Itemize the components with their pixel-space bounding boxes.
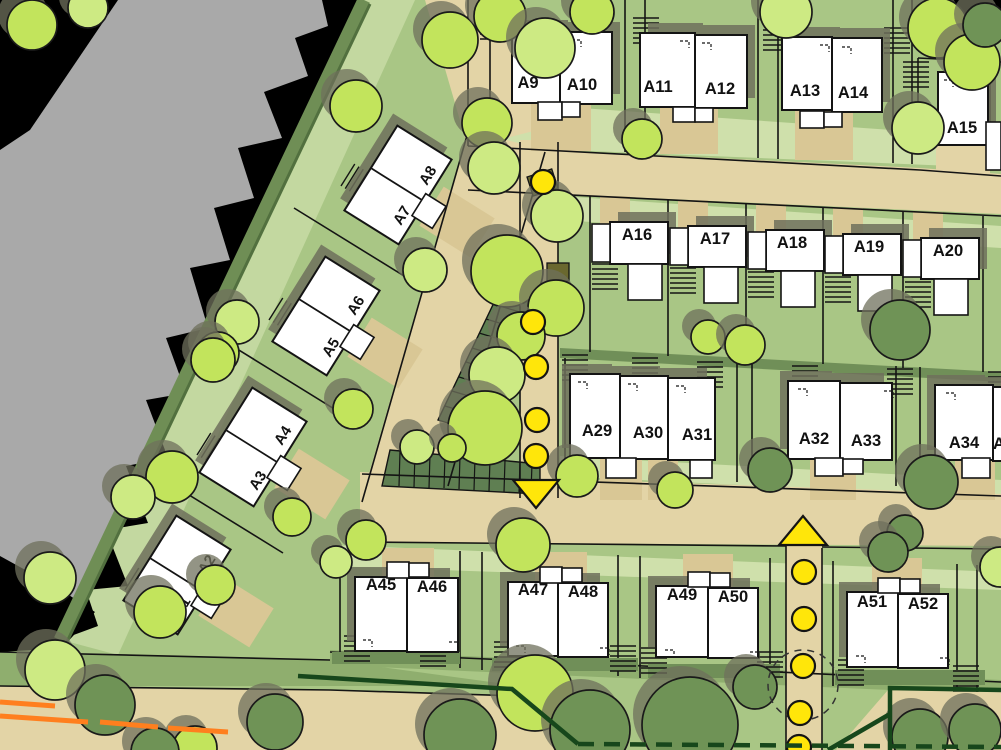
tree-icon (963, 3, 1001, 47)
tree-icon (7, 0, 57, 50)
tree-icon (748, 448, 792, 492)
house-porch (690, 460, 712, 478)
tree-icon (191, 338, 235, 382)
house-porch (815, 458, 843, 476)
tree-icon (949, 704, 1001, 750)
footpath-marker-dot (531, 170, 555, 194)
tree-icon (111, 475, 155, 519)
tree-icon (904, 455, 958, 509)
tree-icon (24, 552, 76, 604)
house-porch (825, 236, 843, 273)
house-porch (606, 458, 636, 478)
garden-hedge (835, 670, 985, 685)
tree-icon (515, 18, 575, 78)
garden-hedge (332, 652, 460, 664)
plot-label: A19 (854, 238, 884, 256)
plot-label: A31 (682, 426, 712, 444)
plot-label: A50 (718, 588, 748, 606)
plot-label: A29 (582, 422, 612, 440)
tree-icon (273, 498, 311, 536)
house-porch (824, 112, 842, 127)
tree-icon (330, 80, 382, 132)
house-porch (704, 267, 738, 303)
house-porch (900, 579, 920, 593)
tree-icon (556, 455, 598, 497)
plot-label: A51 (857, 593, 887, 611)
plot-label: A12 (705, 80, 735, 98)
house-porch (878, 578, 900, 593)
plot-label: A48 (568, 583, 598, 601)
house-porch (688, 572, 710, 587)
plot-house (570, 374, 620, 458)
house-porch (670, 228, 688, 265)
tree-icon (134, 586, 186, 638)
site-plan-svg: A9A10A11A12A13A14A15A16A17A18A19A20A29A3… (0, 0, 1001, 750)
plot-label: A32 (799, 430, 829, 448)
plot-label: A45 (366, 576, 396, 594)
plot-label: A18 (777, 234, 807, 252)
plot-label: A34 (949, 434, 980, 452)
tree-icon (531, 190, 583, 242)
house-porch (710, 573, 730, 587)
tree-icon (247, 694, 303, 750)
plot-label: A11 (643, 78, 672, 96)
house-porch (781, 271, 815, 307)
house-porch (695, 108, 713, 122)
house-porch (628, 264, 662, 300)
house-porch (673, 107, 695, 122)
tree-icon (870, 300, 930, 360)
tree-icon (320, 546, 352, 578)
plot-label: A49 (667, 586, 697, 604)
plot-label: A33 (851, 432, 881, 450)
plot-label: A14 (838, 84, 869, 102)
footpath-marker-dot (524, 355, 548, 379)
house-porch (903, 240, 921, 277)
plot-label: A46 (417, 578, 447, 596)
tree-icon (346, 520, 386, 560)
plot-house (620, 376, 668, 459)
plot-label: A15 (947, 119, 977, 137)
plot-label: A17 (700, 230, 730, 248)
house-porch (409, 563, 429, 577)
tree-icon (438, 434, 466, 462)
house-porch (562, 102, 580, 117)
tree-icon (622, 119, 662, 159)
footpath-marker-dot (525, 408, 549, 432)
tree-icon (468, 142, 520, 194)
footpath-marker-dot (792, 607, 816, 631)
plot-label: A47 (518, 581, 548, 599)
house-porch (843, 459, 863, 474)
plot-label: A52 (908, 595, 938, 613)
house-porch (748, 232, 766, 269)
house-porch (800, 111, 824, 128)
plot-label: A (993, 435, 1001, 453)
tree-icon (496, 518, 550, 572)
tree-icon (333, 389, 373, 429)
house-porch (962, 458, 990, 478)
house-porch (538, 102, 562, 120)
footpath-marker-dot (524, 444, 548, 468)
house-porch (562, 568, 582, 582)
house-porch (934, 279, 968, 315)
plot-label: A13 (790, 82, 820, 100)
house-porch (592, 224, 610, 262)
footpath-marker-dot (791, 654, 815, 678)
tree-icon (725, 325, 765, 365)
tree-icon (422, 12, 478, 68)
plot-house (668, 378, 715, 460)
footpath-marker-dot (521, 310, 545, 334)
tree-icon (892, 102, 944, 154)
tree-icon (657, 472, 693, 508)
tree-icon (868, 532, 908, 572)
drive-a15 (936, 143, 990, 196)
site-plan-map: A9A10A11A12A13A14A15A16A17A18A19A20A29A3… (0, 0, 1001, 750)
tree-icon (195, 565, 235, 605)
footpath-marker-dot (792, 560, 816, 584)
plot-label: A10 (567, 76, 597, 94)
plot-label: A20 (933, 242, 963, 260)
tree-icon (400, 430, 434, 464)
plot-label: A16 (622, 226, 652, 244)
plot-label: A30 (633, 424, 663, 442)
footpath-marker-dot (788, 701, 812, 725)
tree-icon (403, 248, 447, 292)
house-porch (986, 122, 1001, 170)
